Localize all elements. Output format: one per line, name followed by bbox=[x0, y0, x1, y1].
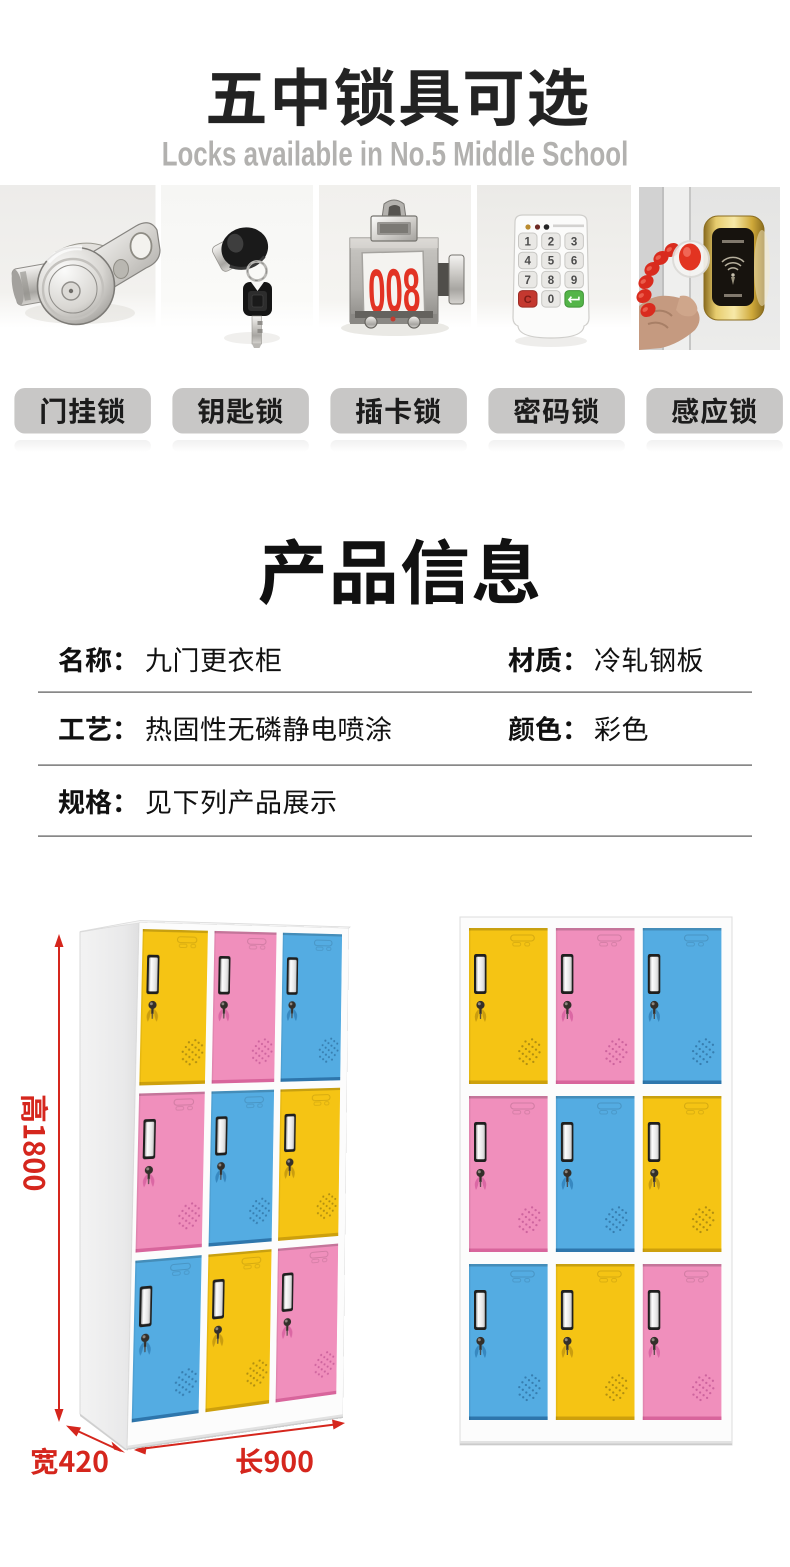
svg-text:C: C bbox=[524, 294, 532, 306]
svg-text:9: 9 bbox=[571, 275, 577, 287]
svg-text:6: 6 bbox=[571, 256, 577, 268]
svg-text:4: 4 bbox=[524, 256, 531, 268]
svg-text:0: 0 bbox=[548, 294, 554, 306]
svg-text:7: 7 bbox=[524, 275, 530, 287]
svg-text:3: 3 bbox=[571, 237, 577, 249]
svg-text:2: 2 bbox=[548, 237, 554, 249]
svg-text:Locks available in No.5 Middle: Locks available in No.5 Middle School bbox=[162, 136, 629, 173]
svg-text:1: 1 bbox=[524, 237, 531, 249]
svg-text:8: 8 bbox=[548, 275, 555, 287]
svg-text:5: 5 bbox=[548, 256, 555, 268]
